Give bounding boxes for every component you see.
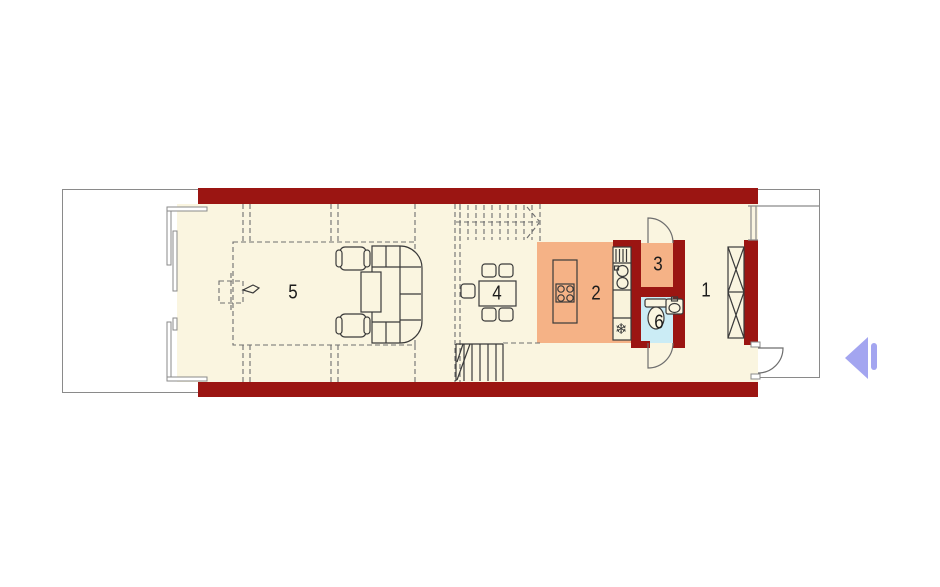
room-label-dining: 4 — [492, 283, 501, 306]
room-label-entrance-hall: 1 — [701, 280, 710, 303]
nav-prev-button[interactable] — [843, 334, 883, 382]
room-label-kitchen: 2 — [591, 283, 600, 306]
wall-right-of-pantry-bath — [673, 240, 685, 348]
nav-prev-bar-icon — [871, 343, 877, 370]
room-kitchen-zone — [537, 242, 631, 343]
wall-top — [198, 188, 758, 204]
room-label-bathroom: 6 — [654, 312, 663, 335]
room-label-pantry: 3 — [653, 254, 662, 277]
floor-plan-page: ❄ 1 2 3 4 — [0, 0, 940, 587]
porch-right — [757, 189, 820, 378]
wall-bottom — [198, 382, 758, 397]
room-label-living: 5 — [288, 282, 297, 305]
wall-bath-bottom-cap — [631, 341, 650, 348]
wall-right-exterior — [744, 240, 758, 345]
nav-prev-triangle-icon — [845, 337, 868, 379]
